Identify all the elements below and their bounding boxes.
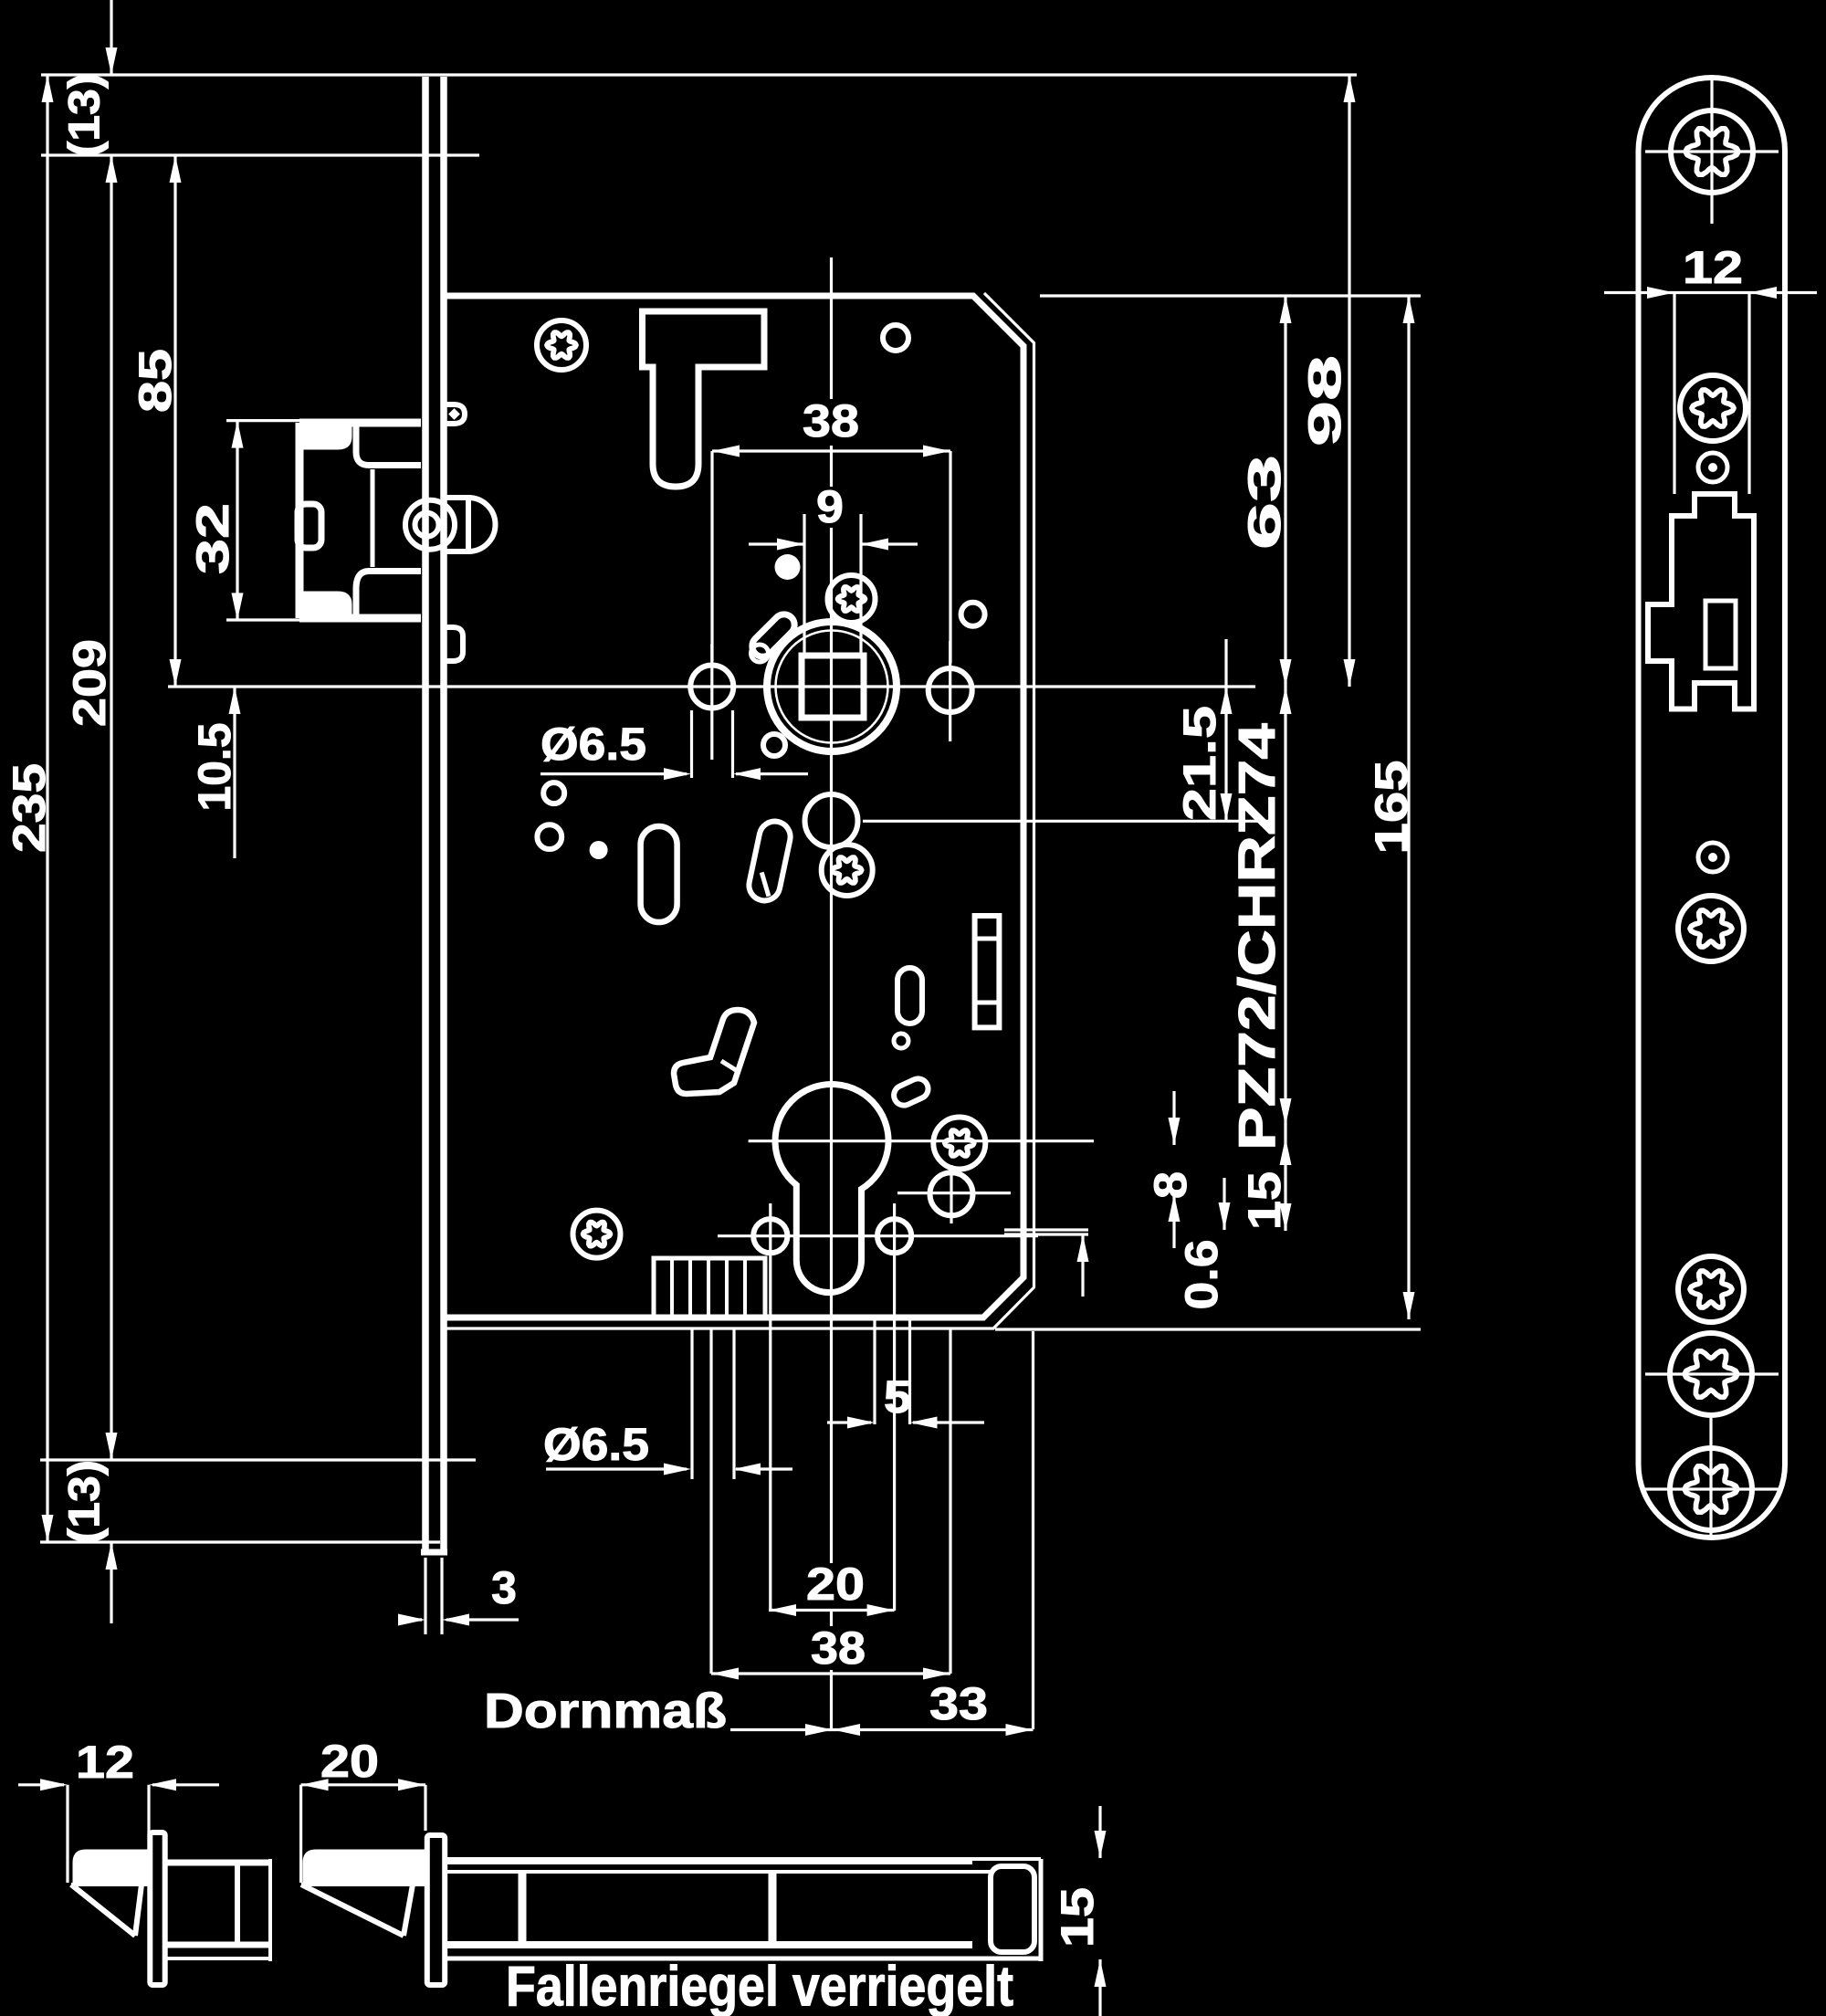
- svg-text:(13): (13): [61, 73, 110, 157]
- svg-text:20: 20: [320, 1736, 379, 1787]
- svg-text:33: 33: [929, 1678, 988, 1729]
- svg-text:32: 32: [187, 503, 238, 574]
- svg-text:0.6: 0.6: [1176, 1240, 1227, 1310]
- svg-text:(13): (13): [61, 1460, 110, 1544]
- svg-text:10.5: 10.5: [189, 723, 240, 812]
- svg-text:Fallenriegel verriegelt: Fallenriegel verriegelt: [506, 1956, 1013, 2016]
- svg-text:Dornmaß: Dornmaß: [484, 1684, 727, 1738]
- svg-text:98: 98: [1299, 355, 1350, 446]
- svg-text:63: 63: [1239, 455, 1290, 550]
- svg-text:15: 15: [1052, 1887, 1103, 1948]
- svg-text:3: 3: [491, 1562, 517, 1613]
- svg-text:85: 85: [130, 349, 181, 413]
- svg-text:38: 38: [803, 395, 859, 446]
- svg-text:8: 8: [1145, 1171, 1196, 1199]
- svg-text:Ø6.5: Ø6.5: [543, 1419, 649, 1470]
- svg-text:9: 9: [816, 481, 844, 532]
- svg-text:235: 235: [4, 763, 55, 853]
- svg-text:15: 15: [1239, 1171, 1290, 1230]
- svg-text:20: 20: [806, 1559, 865, 1610]
- svg-text:5: 5: [884, 1371, 911, 1423]
- svg-text:12: 12: [1683, 242, 1743, 293]
- svg-text:209: 209: [64, 639, 115, 727]
- svg-text:38: 38: [811, 1622, 866, 1674]
- svg-text:Ø6.5: Ø6.5: [540, 719, 646, 770]
- svg-text:12: 12: [76, 1737, 134, 1788]
- svg-text:21.5: 21.5: [1174, 706, 1225, 821]
- svg-text:PZ72/CHRZ74: PZ72/CHRZ74: [1228, 723, 1286, 1150]
- svg-text:165: 165: [1366, 761, 1417, 855]
